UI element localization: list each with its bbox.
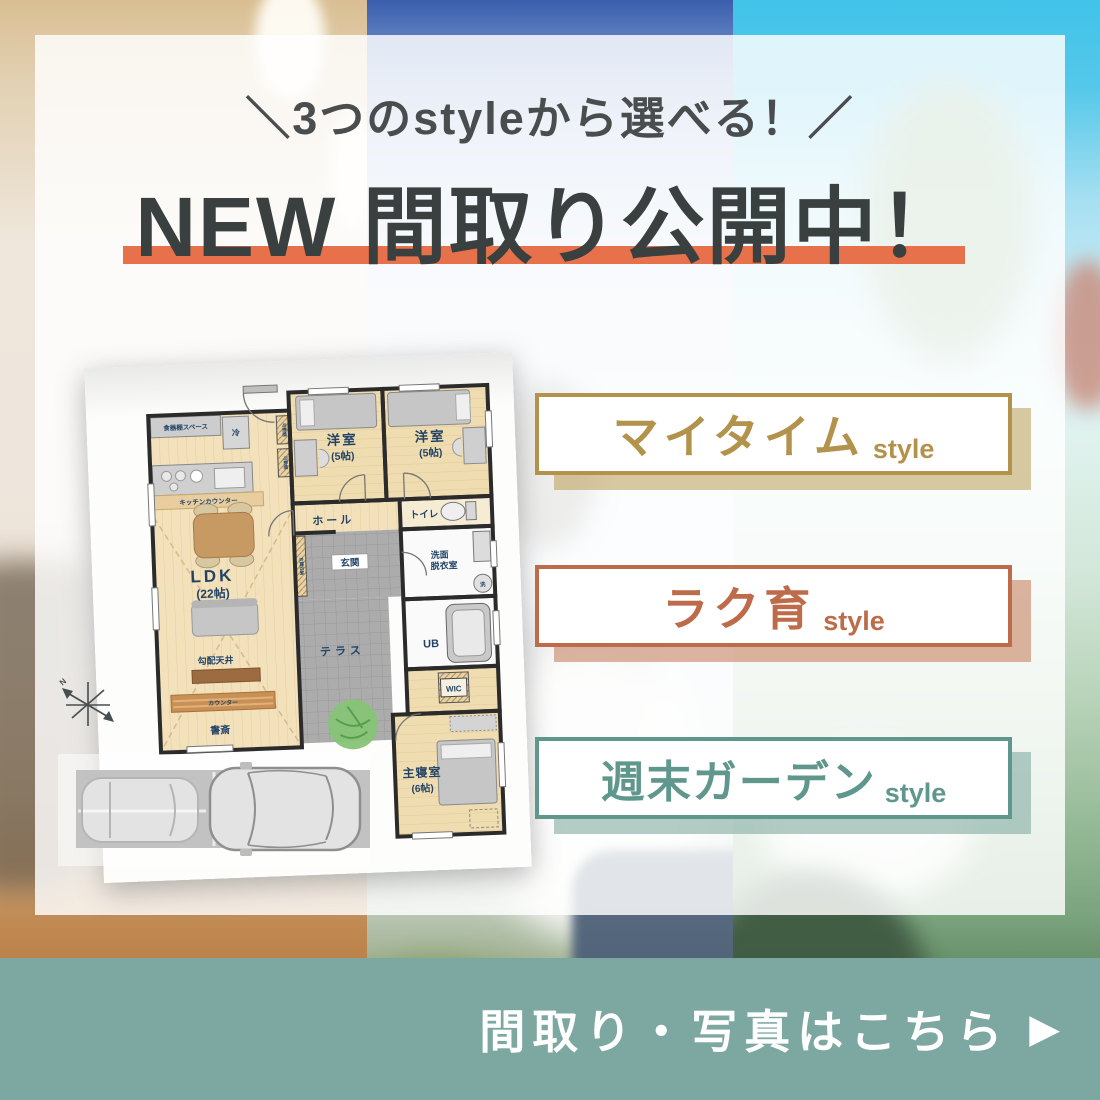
stove-burner [161, 471, 171, 481]
stove-burner [175, 471, 185, 481]
desk [463, 427, 486, 464]
label-washroom-1: 洗面 [430, 549, 448, 561]
label-bedroom2: 洋室 [414, 428, 446, 445]
label-hall: ホール [312, 513, 354, 528]
dresser [450, 715, 497, 732]
style-button-weekend-garden[interactable]: 週末ガーデン style [535, 737, 1012, 819]
tv-board [192, 668, 260, 684]
front-door [243, 385, 277, 393]
style-button-suffix: style [823, 606, 885, 637]
toilet-bowl [441, 502, 466, 521]
label-toilet: トイレ [410, 509, 439, 521]
stove-burner [170, 483, 178, 491]
style-button-suffix: style [873, 434, 935, 465]
cta-inner: 間取り・写真はこちら ▶ [479, 996, 1060, 1062]
compass-north-label: N [58, 676, 68, 687]
label-bedroom2-size: (5帖) [419, 446, 443, 460]
label-master-bedroom: 主寝室 [402, 764, 442, 780]
label-washroom-2: 脱衣室 [430, 559, 457, 571]
label-entrance: 玄関 [340, 556, 359, 569]
label-bedroom1: 洋室 [326, 431, 358, 448]
parking-drawing [58, 754, 370, 866]
label-ldk-size: (22帖) [196, 585, 230, 601]
person-figure [190, 470, 202, 482]
kitchen-sink [214, 467, 245, 488]
style-button-label: ラク育 [662, 573, 815, 639]
car-ghost [82, 778, 198, 842]
banner: ＼3つのstyleから選べる！／ NEW 間取り公開中！ [0, 0, 1100, 1100]
cta-label: 間取り・写真はこちら [479, 996, 1009, 1062]
parking-area [58, 754, 370, 866]
label-unit-bath: UB [423, 638, 439, 651]
page-title: NEW 間取り公開中！ [0, 160, 1100, 281]
pillow [300, 400, 315, 427]
style-button-rakuiku[interactable]: ラク育 style [535, 565, 1012, 647]
label-master-bedroom-size: (6帖) [411, 781, 434, 795]
style-button-suffix: style [885, 778, 947, 809]
washbasin [473, 531, 491, 562]
bathtub-inner [452, 609, 486, 656]
style-button-mytime[interactable]: マイタイム style [535, 393, 1012, 475]
label-ldk: LDK [190, 566, 235, 587]
label-sloped-ceiling: 勾配天井 [197, 654, 233, 666]
cta-bar[interactable]: 間取り・写真はこちら ▶ [0, 958, 1100, 1100]
dining-table [193, 512, 255, 558]
toilet-tank [466, 501, 477, 519]
pillow [456, 394, 471, 421]
label-wic: WIC [446, 684, 462, 694]
style-button-label: 週末ガーデン [601, 746, 877, 810]
compass-icon: N [58, 674, 118, 734]
desk [294, 440, 317, 477]
label-terrace: テラス [320, 644, 365, 659]
cta-arrow-icon: ▶ [1029, 1006, 1060, 1052]
style-button-label: マイタイム [613, 401, 865, 467]
car [210, 762, 360, 856]
label-study: 書斎 [210, 723, 230, 737]
pillow [441, 743, 492, 759]
label-bedroom1-size: (5帖) [331, 449, 355, 463]
label-fridge: 冷 [232, 427, 240, 437]
tagline: ＼3つのstyleから選べる！／ [0, 82, 1100, 147]
label-washer: 洗 [480, 580, 486, 588]
